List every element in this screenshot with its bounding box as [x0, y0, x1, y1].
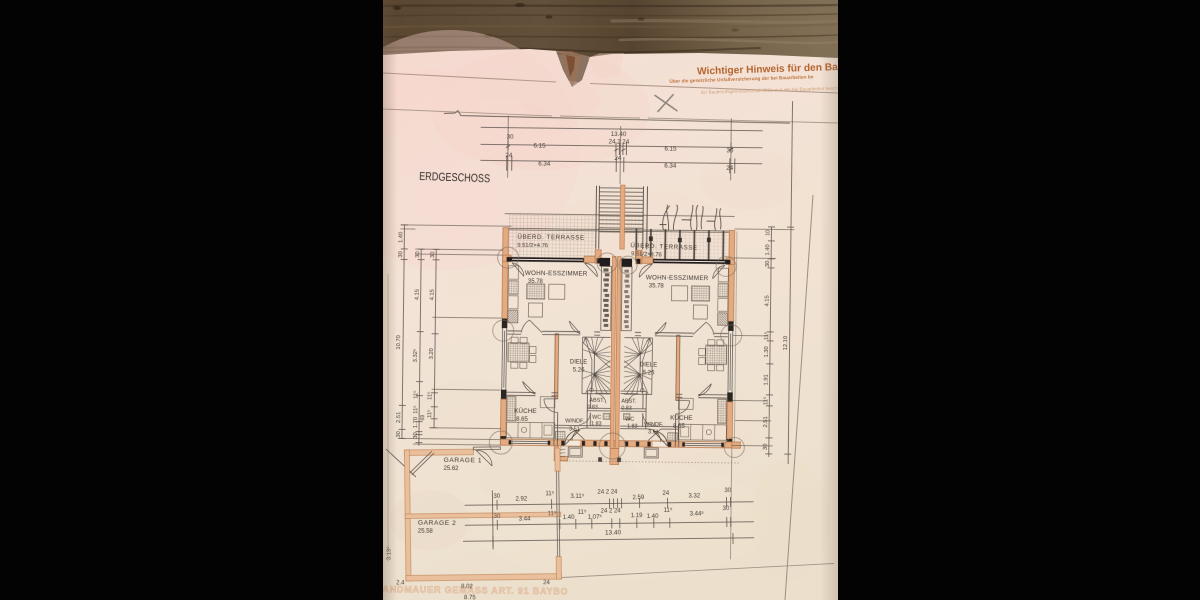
svg-text:WC: WC: [625, 417, 634, 423]
svg-text:WOHN-ESSZIMMER: WOHN-ESSZIMMER: [525, 270, 588, 278]
svg-text:11⁵: 11⁵: [426, 391, 433, 400]
svg-text:11⁵: 11⁵: [664, 507, 673, 514]
svg-text:3.44⁵: 3.44⁵: [690, 510, 705, 517]
svg-text:1.83: 1.83: [627, 424, 638, 430]
svg-text:30: 30: [430, 252, 436, 259]
svg-text:30: 30: [724, 488, 731, 494]
svg-text:11⁵: 11⁵: [548, 510, 557, 517]
svg-text:12.10: 12.10: [783, 336, 789, 351]
svg-text:1.40: 1.40: [398, 232, 404, 243]
svg-text:KÜCHE: KÜCHE: [670, 414, 692, 422]
svg-text:3.20: 3.20: [429, 348, 435, 359]
svg-text:WOHN-ESSZIMMER: WOHN-ESSZIMMER: [646, 274, 709, 282]
svg-text:30: 30: [413, 432, 419, 439]
svg-text:1.70: 1.70: [413, 417, 419, 428]
svg-text:9.51/2×4.76: 9.51/2×4.76: [517, 243, 548, 249]
svg-text:11⁵: 11⁵: [545, 490, 554, 497]
svg-text:2.51: 2.51: [763, 416, 769, 427]
svg-text:3.32⁵: 3.32⁵: [412, 348, 419, 362]
svg-text:DIELE: DIELE: [570, 359, 587, 365]
svg-text:6.15: 6.15: [533, 142, 546, 149]
svg-text:24 2 24: 24 2 24: [601, 508, 622, 514]
svg-text:ÜBERD. TERRASSE: ÜBERD. TERRASSE: [517, 234, 584, 242]
svg-text:24: 24: [543, 580, 550, 586]
svg-text:ERDGESCHOSS: ERDGESCHOSS: [419, 171, 491, 185]
svg-text:11⁵: 11⁵: [578, 509, 587, 516]
svg-text:13.40: 13.40: [611, 131, 627, 138]
svg-text:3.32: 3.32: [688, 493, 700, 499]
svg-text:ABST.: ABST.: [621, 399, 636, 405]
svg-text:30: 30: [723, 506, 730, 512]
svg-text:25.58: 25.58: [418, 529, 434, 535]
svg-text:3.51: 3.51: [569, 426, 580, 432]
svg-text:1.40: 1.40: [765, 244, 771, 255]
svg-text:0.83: 0.83: [621, 406, 632, 412]
svg-text:4.15: 4.15: [765, 295, 771, 306]
svg-text:30: 30: [415, 251, 421, 258]
svg-text:1.40: 1.40: [563, 515, 575, 521]
svg-text:5.26: 5.26: [573, 367, 585, 373]
svg-text:1.40: 1.40: [647, 514, 659, 520]
svg-text:30: 30: [494, 514, 501, 520]
svg-text:11⁵: 11⁵: [763, 331, 770, 340]
svg-text:8.02: 8.02: [461, 584, 473, 590]
svg-text:69: 69: [420, 415, 426, 421]
svg-text:24: 24: [726, 165, 734, 172]
svg-text:5.26: 5.26: [643, 370, 655, 376]
svg-text:4.15: 4.15: [430, 289, 436, 300]
svg-text:WINDF.: WINDF.: [565, 418, 585, 424]
svg-text:30: 30: [398, 251, 404, 258]
svg-text:2.92: 2.92: [515, 497, 527, 503]
svg-text:6.15: 6.15: [664, 146, 677, 153]
svg-text:3.51: 3.51: [648, 429, 659, 435]
svg-text:11⁵: 11⁵: [412, 390, 419, 399]
svg-text:11⁵: 11⁵: [412, 405, 419, 414]
svg-text:8.65: 8.65: [673, 424, 685, 430]
svg-text:WC: WC: [592, 415, 601, 421]
svg-text:KÜCHE: KÜCHE: [514, 407, 536, 415]
svg-text:2.59: 2.59: [632, 495, 644, 501]
svg-text:10: 10: [765, 230, 771, 236]
svg-text:6.34: 6.34: [664, 163, 677, 170]
svg-text:25.62: 25.62: [443, 466, 459, 472]
svg-text:24 2 24: 24 2 24: [608, 138, 629, 145]
svg-text:8.75: 8.75: [464, 595, 476, 600]
svg-text:30: 30: [726, 147, 734, 154]
svg-text:30: 30: [765, 261, 771, 268]
svg-text:0.83: 0.83: [587, 405, 598, 411]
svg-text:9.51/2×4.76: 9.51/2×4.76: [631, 251, 662, 258]
svg-text:1.30: 1.30: [764, 346, 770, 357]
svg-text:30: 30: [493, 494, 500, 500]
svg-text:24: 24: [662, 491, 669, 497]
svg-text:GARAGE 2: GARAGE 2: [418, 520, 457, 527]
svg-text:11⁵: 11⁵: [426, 409, 433, 418]
svg-text:1.91: 1.91: [764, 374, 770, 385]
svg-text:1.19: 1.19: [631, 513, 643, 519]
svg-text:1.07⁵: 1.07⁵: [588, 514, 603, 521]
svg-text:11⁵: 11⁵: [762, 396, 769, 405]
svg-text:24: 24: [505, 152, 513, 159]
svg-text:6.34: 6.34: [538, 161, 551, 168]
svg-text:2.51: 2.51: [396, 412, 402, 423]
svg-text:13.40: 13.40: [605, 529, 622, 536]
svg-text:DIELE: DIELE: [640, 362, 657, 368]
svg-text:8.65: 8.65: [516, 417, 528, 423]
svg-text:1.83: 1.83: [591, 421, 602, 427]
svg-text:ABST.: ABST.: [589, 398, 604, 404]
svg-text:35.78: 35.78: [649, 283, 665, 289]
svg-text:30: 30: [763, 444, 769, 451]
svg-text:WINDF.: WINDF.: [644, 422, 664, 428]
svg-text:3.11⁵: 3.11⁵: [570, 493, 584, 500]
svg-text:24 2 24: 24 2 24: [597, 489, 618, 495]
svg-text:35.78: 35.78: [528, 279, 544, 285]
svg-text:3.44: 3.44: [519, 516, 531, 522]
svg-text:2.4: 2.4: [396, 580, 405, 586]
svg-text:4.15: 4.15: [415, 289, 421, 300]
svg-text:GARAGE 1: GARAGE 1: [444, 457, 483, 464]
svg-text:30: 30: [507, 134, 515, 141]
